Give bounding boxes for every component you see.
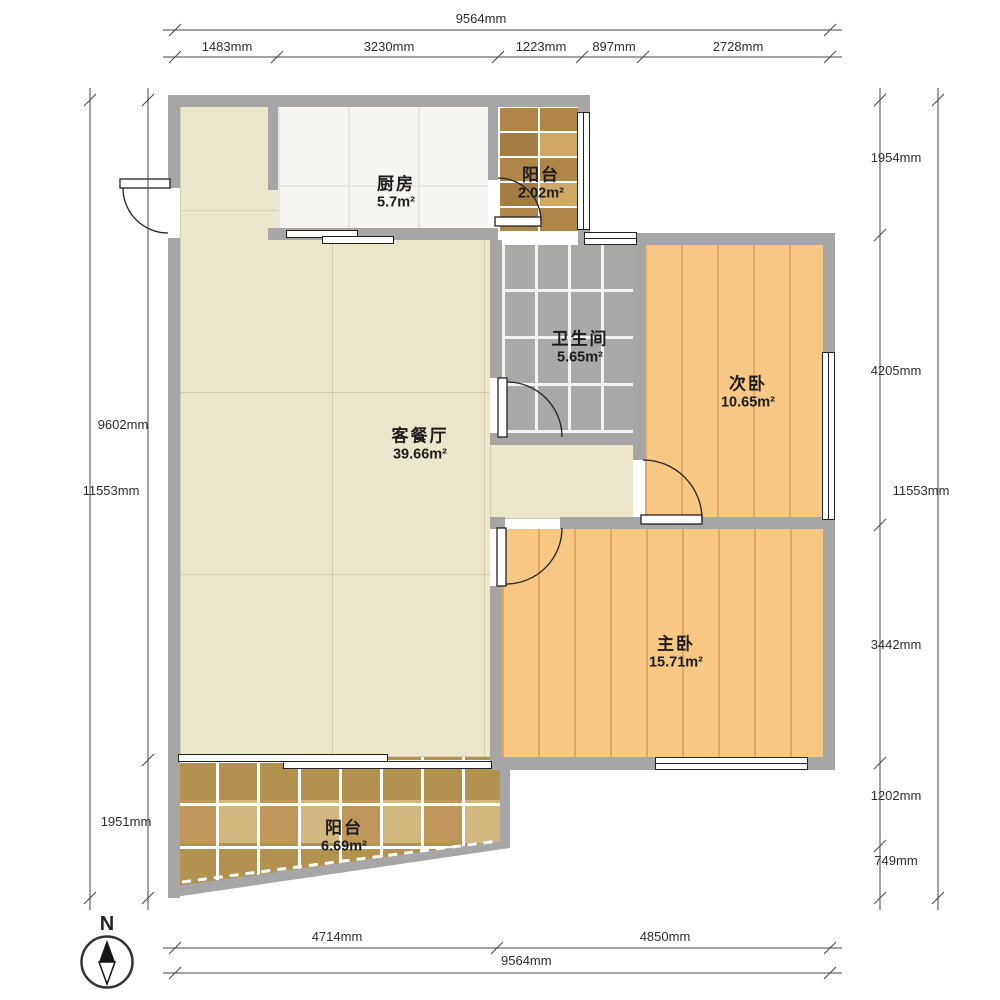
dim-top-seg-2: 1223mm xyxy=(505,40,577,54)
bathroom-door-opening xyxy=(490,378,502,433)
wall-top xyxy=(168,95,590,107)
room-area-balcony-top: 2.02m² xyxy=(518,186,564,202)
window-balcony-top xyxy=(577,112,590,230)
bedroom-master-door-opening xyxy=(490,529,502,586)
dim-right-seg-2: 3442mm xyxy=(855,638,937,652)
room-name-bathroom: 卫生间 xyxy=(552,325,609,350)
room-name-bedroom-second: 次卧 xyxy=(721,370,775,395)
sliding-door-balcony-panel-2 xyxy=(283,761,492,769)
wall-kitchen-west xyxy=(268,107,278,190)
room-name-kitchen: 厨房 xyxy=(377,170,415,195)
room-label-bedroom-master: 主卧 15.71m² xyxy=(649,630,703,671)
room-area-kitchen: 5.7m² xyxy=(377,195,415,211)
wall-master-west xyxy=(490,586,502,757)
dim-top-seg-4: 2728mm xyxy=(702,40,774,54)
dim-bottom-total: 9564mm xyxy=(500,954,572,968)
dim-right-seg-4: 749mm xyxy=(855,854,937,868)
bedroom-second-door-opening xyxy=(633,460,645,517)
room-area-bedroom-master: 15.71m² xyxy=(649,655,703,671)
room-area-bedroom-second: 10.65m² xyxy=(721,395,775,411)
dim-right-seg-1: 4205mm xyxy=(855,364,937,378)
room-label-bedroom-second: 次卧 10.65m² xyxy=(721,370,775,411)
hallway-floor xyxy=(490,443,645,519)
dim-right-total: 11553mm xyxy=(880,484,962,498)
wall-bathroom-east xyxy=(633,240,645,460)
entry-door xyxy=(120,179,170,233)
room-area-living-dining: 39.66m² xyxy=(392,447,449,463)
wall-bathroom-west xyxy=(490,240,502,378)
wall-left-upper xyxy=(168,95,180,188)
dim-top-seg-1: 3230mm xyxy=(353,40,425,54)
dim-top-seg-0: 1483mm xyxy=(191,40,263,54)
window-bathroom xyxy=(584,232,637,245)
compass: N xyxy=(79,914,135,995)
wall-master-north-corner xyxy=(490,517,505,529)
dim-bottom-seg-0: 4714mm xyxy=(301,930,373,944)
window-bedroom-master xyxy=(655,757,808,770)
room-name-bedroom-master: 主卧 xyxy=(649,630,703,655)
wall-kitchen-balcony xyxy=(488,107,498,180)
dim-bottom-seg-1: 4850mm xyxy=(629,930,701,944)
dim-left-seg-1: 1951mm xyxy=(85,815,167,829)
dim-right-seg-3: 1202mm xyxy=(855,789,937,803)
room-area-bathroom: 5.65m² xyxy=(552,350,609,366)
wall-left-lower xyxy=(168,238,180,898)
wall-master-north xyxy=(560,517,835,529)
room-label-living-dining: 客餐厅 39.66m² xyxy=(392,422,449,463)
compass-north-label: N xyxy=(79,914,135,934)
dim-top-seg-3: 897mm xyxy=(582,40,646,54)
floor-plan: 9564mm 1483mm 3230mm 1223mm 897mm 2728mm… xyxy=(0,0,1000,1000)
dim-top-total: 9564mm xyxy=(430,12,532,26)
dim-left-seg-0: 9602mm xyxy=(82,418,164,432)
room-label-balcony-bottom: 阳台 6.69m² xyxy=(321,814,367,855)
dim-left-total: 11553mm xyxy=(70,484,152,498)
sliding-door-kitchen-panel-2 xyxy=(322,236,394,244)
wall-bathroom-south xyxy=(490,433,645,445)
window-bedroom-second xyxy=(822,352,835,520)
room-name-balcony-top: 阳台 xyxy=(518,161,564,186)
dim-right-seg-0: 1954mm xyxy=(855,151,937,165)
room-label-bathroom: 卫生间 5.65m² xyxy=(552,325,609,366)
room-area-balcony-bottom: 6.69m² xyxy=(321,839,367,855)
room-label-balcony-top: 阳台 2.02m² xyxy=(518,161,564,202)
compass-icon xyxy=(79,934,135,990)
room-name-balcony-bottom: 阳台 xyxy=(321,814,367,839)
room-name-living-dining: 客餐厅 xyxy=(392,422,449,447)
entry-door-opening xyxy=(168,188,180,238)
room-label-kitchen: 厨房 5.7m² xyxy=(377,170,415,211)
balcony-top-door-opening xyxy=(488,180,498,228)
